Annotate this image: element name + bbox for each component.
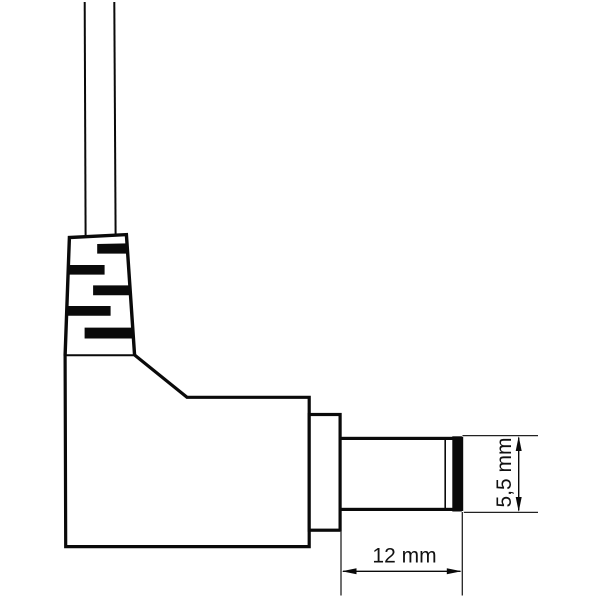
svg-text:12 mm: 12 mm xyxy=(372,545,436,568)
svg-text:5,5 mm: 5,5 mm xyxy=(493,437,516,507)
